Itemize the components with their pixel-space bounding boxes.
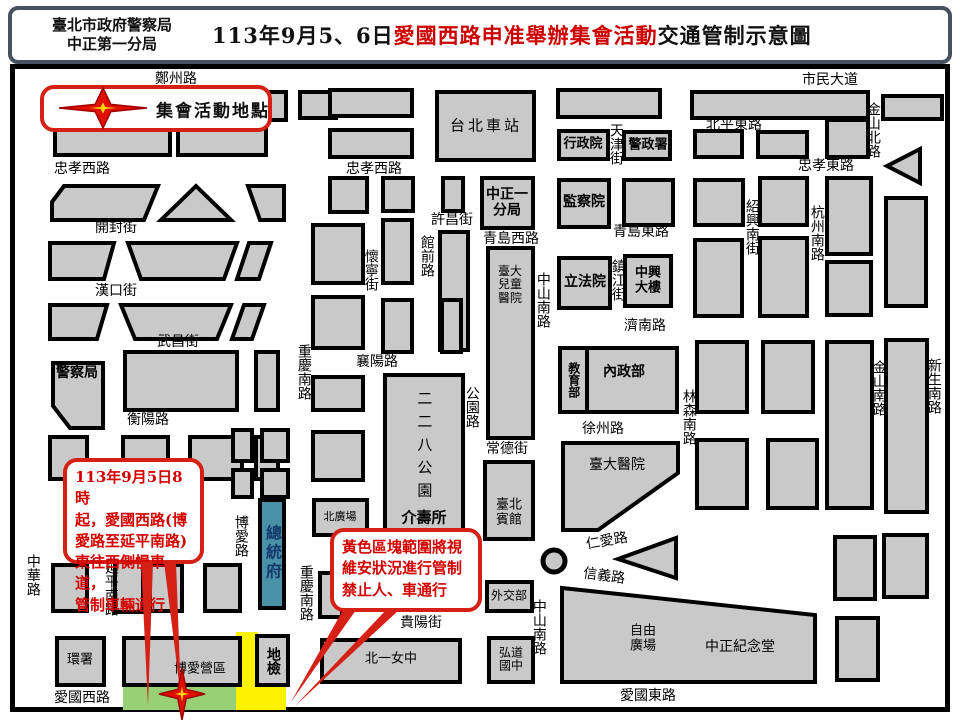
street-label: 漢口街 xyxy=(95,284,137,300)
north-plaza-label: 北廣場 xyxy=(324,511,357,523)
street-label: 天津街 xyxy=(607,123,623,165)
foreign-ministry-label: 外交部 xyxy=(491,589,527,602)
control-yuan-label: 監察院 xyxy=(563,195,605,211)
street-label: 杭州南路 xyxy=(808,205,824,261)
street-label: 襄陽路 xyxy=(356,355,398,371)
npa-label: 警政署 xyxy=(628,139,667,154)
street-label: 徐州路 xyxy=(582,422,624,438)
street-label: 重慶南路 xyxy=(295,344,311,400)
street-label: 重慶南路 xyxy=(297,565,313,621)
street-label: 忠孝西路 xyxy=(54,162,110,178)
zhongzheng-precinct-label: 中正一 分局 xyxy=(486,187,528,218)
street-label: 館前路 xyxy=(418,235,434,277)
street-label: 濟南路 xyxy=(624,319,666,335)
street-label: 懷寧街 xyxy=(362,249,378,291)
presidential-office-label: 總統府 xyxy=(263,525,281,582)
epa-label: 環署 xyxy=(67,654,93,669)
education-ministry-label: 教育部 xyxy=(566,362,579,398)
street-label: 愛國西路 xyxy=(54,691,110,707)
street-label: 公園路 xyxy=(463,386,479,428)
street-label: 開封街 xyxy=(95,221,137,237)
street-label: 中山南路 xyxy=(534,272,550,328)
title-event: 愛國西路申准舉辦集會活動 xyxy=(394,23,658,48)
street-label: 中山南路 xyxy=(530,599,546,655)
street-label: 青島西路 xyxy=(483,232,539,248)
legend-box: 集會活動地點 xyxy=(40,85,272,132)
taipei-guest-house-label: 臺北 賓館 xyxy=(496,498,522,527)
street-label: 新生南路 xyxy=(925,358,941,414)
ntu-children-hospital-label: 臺大 兒童 醫院 xyxy=(498,265,522,305)
street-label: 紹興南街 xyxy=(743,199,759,255)
street-label: 市民大道 xyxy=(802,73,858,89)
district-court-label: 地檢 xyxy=(264,647,280,675)
street-label: 貴陽街 xyxy=(400,616,442,632)
legislative-yuan-label: 立法院 xyxy=(564,275,606,291)
liberty-square-label: 自由 廣場 xyxy=(630,624,656,653)
zhongxing-building-label: 中興 大樓 xyxy=(635,266,661,295)
street-label: 林森南路 xyxy=(680,389,696,445)
traffic-control-map-page: 臺北市政府警察局 中正第一分局 113年9月5、6日愛國西路申准舉辦集會活動交通… xyxy=(0,0,960,720)
street-label: 信義路 xyxy=(582,566,626,587)
executive-yuan-label: 行政院 xyxy=(563,138,602,153)
street-label: 常德街 xyxy=(486,442,528,458)
title-suffix: 交通管制示意圖 xyxy=(658,23,812,48)
first-girls-high-label: 北一女中 xyxy=(365,653,417,668)
street-label: 金山北路 xyxy=(864,102,880,158)
header-bar: 臺北市政府警察局 中正第一分局 113年9月5、6日愛國西路申准舉辦集會活動交通… xyxy=(8,6,952,64)
legend-label: 集會活動地點 xyxy=(156,96,270,121)
jieshou-office-label: 介壽所 xyxy=(401,510,446,527)
street-label: 金山南路 xyxy=(870,360,886,416)
agency-name: 臺北市政府警察局 中正第一分局 xyxy=(12,16,212,55)
street-label: 許昌街 xyxy=(431,213,473,229)
street-label: 忠孝西路 xyxy=(346,162,402,178)
agency-line2: 中正第一分局 xyxy=(12,35,212,55)
228-park-label: 二二八公園 xyxy=(416,391,433,506)
title-date: 113年9月5、6日 xyxy=(212,23,394,48)
street-label: 北平東路 xyxy=(706,118,762,134)
street-label: 鎮江街 xyxy=(609,259,625,301)
street-label: 愛國東路 xyxy=(620,689,676,705)
page-title: 113年9月5、6日愛國西路申准舉辦集會活動交通管制示意圖 xyxy=(212,20,948,50)
interior-ministry-label: 內政部 xyxy=(603,365,645,381)
callout-yellow-zone-control: 黃色區塊範圍將視 維安狀況進行管制 禁止人、車通行 xyxy=(330,528,482,612)
street-label: 武昌街 xyxy=(157,335,199,351)
street-label: 忠孝東路 xyxy=(798,159,854,175)
street-label: 中華路 xyxy=(24,554,40,596)
agency-line1: 臺北市政府警察局 xyxy=(12,16,212,36)
street-label: 博愛路 xyxy=(232,515,248,557)
street-label: 仁愛路 xyxy=(585,531,629,554)
street-label: 衡陽路 xyxy=(127,413,169,429)
boai-camp-label: 博愛營區 xyxy=(174,663,226,678)
ntu-hospital-label: 臺大醫院 xyxy=(589,458,645,474)
hongdao-jhs-label: 弘道 國中 xyxy=(499,647,523,674)
taipei-main-station-label: 台北車站 xyxy=(450,118,522,135)
cks-memorial-label: 中正紀念堂 xyxy=(705,640,775,656)
police-hq-label: 警察局 xyxy=(56,366,98,382)
street-label: 青島東路 xyxy=(613,225,669,241)
callout-west-lane-control: 113年9月5日8時 起，愛國西路(博 愛路至延平南路) 東往西側慢車道， 管制… xyxy=(63,458,204,564)
